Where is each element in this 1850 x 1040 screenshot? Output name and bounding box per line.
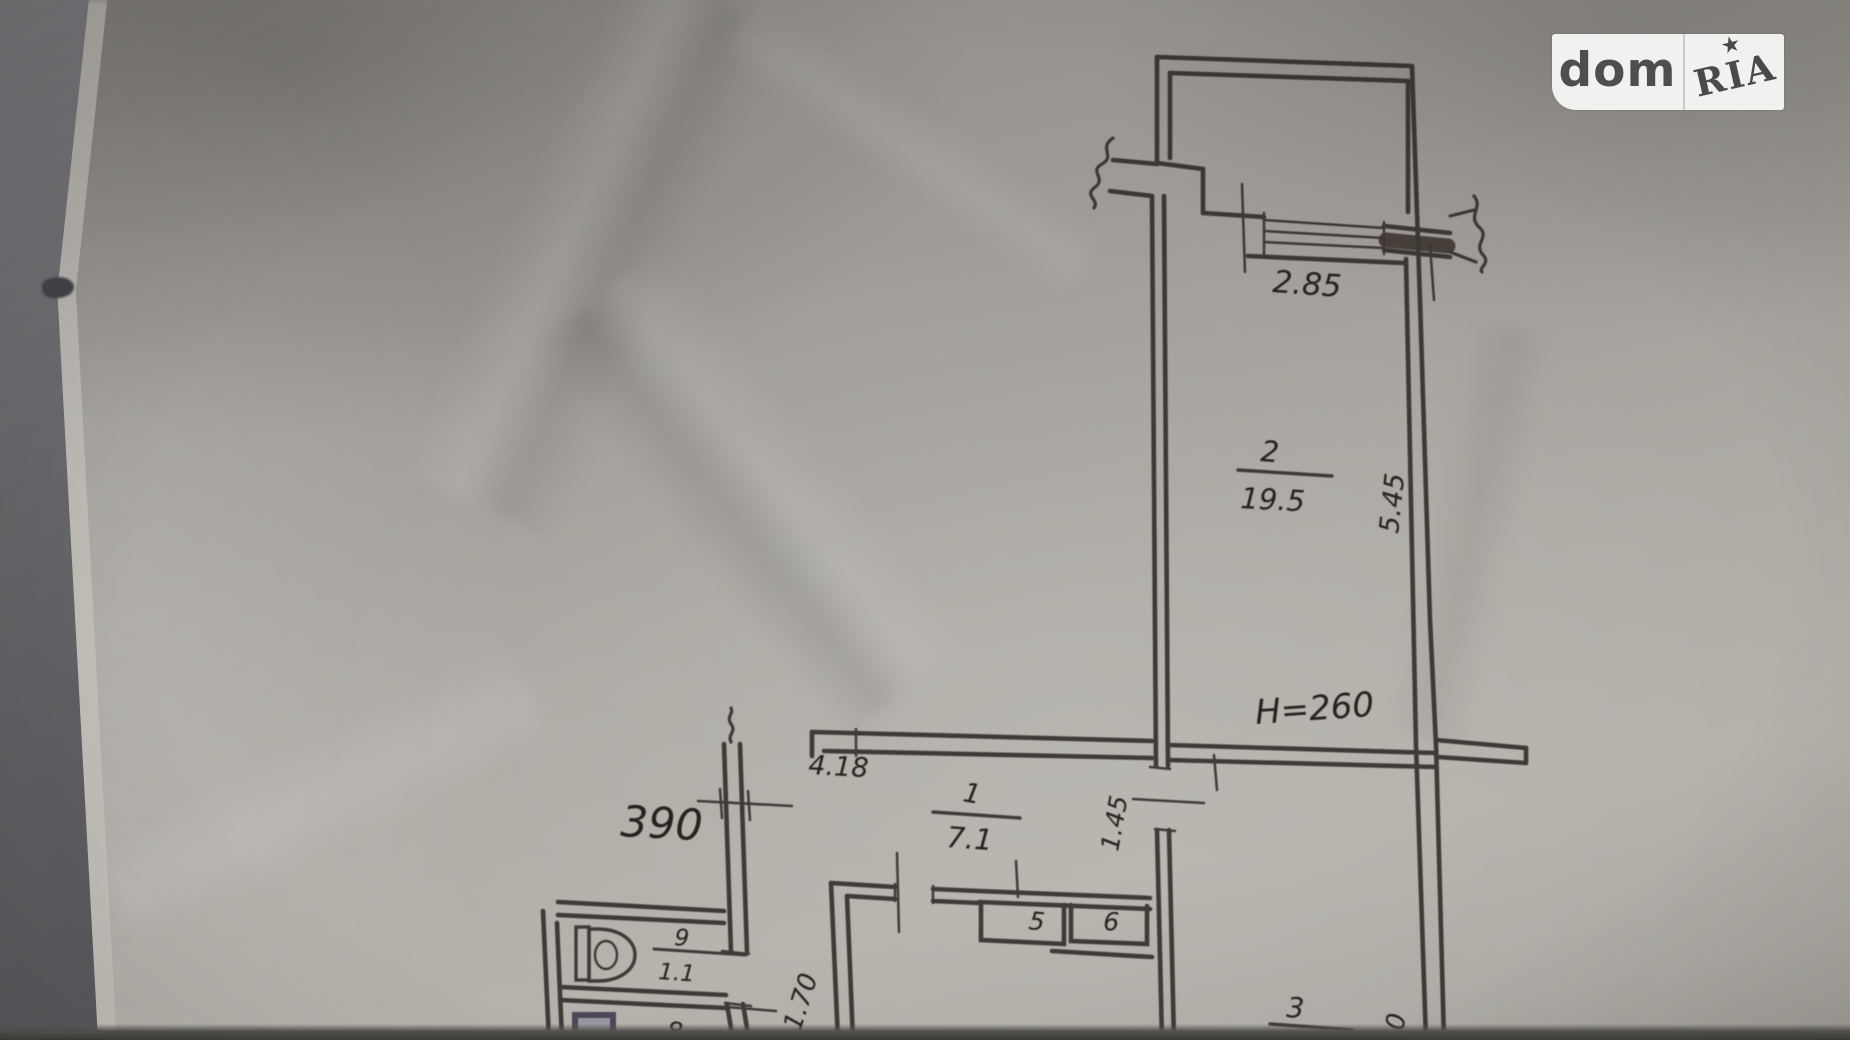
floor-plan-photo: 2.85 2 19.5 5.45 Н=260 4.18 1 7.1 1.45 3… [0,0,1850,1040]
room3-number: 3 [1286,991,1306,1025]
wc-number: 9 [674,925,690,952]
dim-balcony-width: 2.85 [1271,264,1342,305]
dim-opening-width: 1.45 [1095,793,1133,853]
room1-area: 7.1 [946,820,994,857]
ceiling-height-note: Н=260 [1254,685,1375,733]
ria-logo-text: RIA [1690,44,1781,105]
wall-fill [1386,240,1448,246]
dom-logo-text: dom [1552,34,1683,110]
toilet-icon [576,927,635,981]
room2-area: 19.5 [1240,481,1306,518]
red-dimension: 390 [619,797,704,851]
dim-hall-width: 4.18 [808,750,870,784]
wall-lines [543,57,1526,1040]
photo-bottom-edge [0,1024,1850,1040]
break-symbols [729,138,1485,742]
closet5-number: 5 [1027,906,1046,937]
ria-logo-box: ★ RIA [1685,34,1784,110]
wc-area: 1.1 [658,959,696,987]
ink-drawing [543,57,1526,1040]
dom-ria-watermark: dom ★ RIA [1552,34,1784,110]
closet6-number: 6 [1103,907,1120,937]
room2-number: 2 [1260,434,1281,469]
handwritten-labels: 2.85 2 19.5 5.45 Н=260 4.18 1 7.1 1.45 3… [619,264,1413,1040]
floor-plan-drawing: 2.85 2 19.5 5.45 Н=260 4.18 1 7.1 1.45 3… [0,0,1850,1040]
dim-room2-length: 5.45 [1374,472,1411,535]
room1-number: 1 [961,777,983,811]
